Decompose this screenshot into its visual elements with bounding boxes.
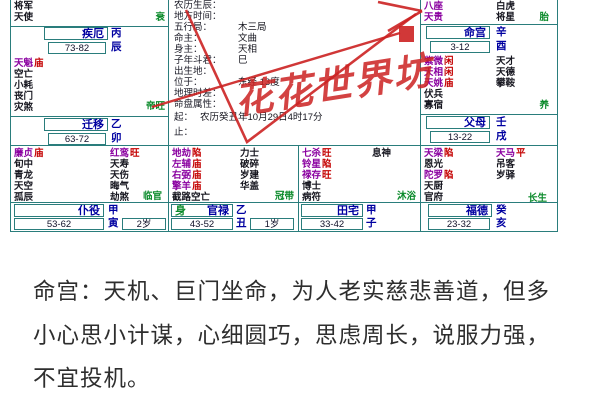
star-list: 力士 破碎 岁建 华盖	[240, 148, 259, 192]
stem: 辛	[496, 26, 508, 39]
grid-line	[10, 231, 558, 232]
star: 天厨	[424, 181, 454, 192]
star: 博士	[302, 181, 332, 192]
star: 天梁陷	[424, 148, 454, 159]
star: 息神	[372, 148, 391, 159]
palace-fude: 天梁陷 恩光 陀罗陷 天厨 官府 天马平 吊客 岁驿 长生 福德 癸 23-32…	[420, 143, 557, 231]
star: 红鸾旺	[110, 148, 140, 159]
stem: 壬	[496, 116, 508, 129]
info-row: 农历生辰：	[174, 0, 418, 11]
decade-range: 33-42	[301, 218, 363, 230]
annual-age: 2岁	[122, 218, 166, 230]
star: 天马平	[496, 148, 526, 159]
body-palace-marker: 身	[175, 205, 186, 216]
star: 地劫陷	[172, 148, 210, 159]
info-row: 命盘属性：	[174, 99, 418, 110]
stage-marker: 养	[539, 101, 549, 111]
stem: 癸	[496, 204, 508, 217]
star-list: 天才 天德 攀鞍	[496, 56, 515, 89]
star-list: 白虎 将星	[496, 1, 515, 23]
star-list: 八座 天贵	[424, 1, 443, 23]
palace-name: 父母	[426, 116, 490, 129]
astrology-article: 将军 天使 衰 疾厄 丙 73-82 辰 八座 天贵 白虎 将星 胎 命宫 辛 …	[0, 0, 600, 400]
description-line: 小心思小计谋，心细圆巧，思虑周长，说服力强，	[33, 314, 578, 358]
star: 旬中	[14, 159, 44, 170]
annual-age: 1岁	[250, 218, 294, 230]
star: 空亡	[14, 69, 44, 80]
palace-puyi: 廉贞庙 旬中 青龙 天空 孤辰 红鸾旺 天寿 天伤 晦气 劫煞 临官 仆役 甲 …	[10, 145, 168, 231]
star: 小耗	[14, 80, 44, 91]
stage-marker: 沐浴	[397, 192, 416, 202]
star: 华盖	[240, 181, 259, 192]
stem: 甲	[366, 204, 378, 217]
palace-name: 疾厄	[44, 27, 108, 40]
palace-name: 命宫	[426, 26, 490, 39]
palace-minggong: 八座 天贵 白虎 将星 胎 命宫 辛 3-12 酉	[420, 0, 557, 52]
branch: 戌	[496, 130, 508, 143]
palace-tianzhai: 七杀旺 铃星陷 禄存旺 博士 病符 息神 沐浴 田宅 甲 33-42 子	[298, 145, 420, 231]
decade-range: 23-32	[428, 218, 490, 230]
palace-name: 迁移	[44, 118, 108, 131]
star-list: 地劫陷 左辅庙 右弼庙 擎羊庙 截路空亡	[172, 148, 210, 203]
star-list: 七杀旺 铃星陷 禄存旺 博士 病符	[302, 148, 332, 203]
palace-description: 命宫：天机、巨门坐命，为人老实慈悲善道，但多 小心思小计谋，心细圆巧，思虑周长，…	[33, 270, 578, 400]
branch: 寅	[108, 217, 120, 230]
branch: 亥	[496, 217, 508, 230]
info-row: 止：	[174, 127, 418, 138]
star: 破碎	[240, 159, 259, 170]
palace-jie: 将军 天使 衰 疾厄 丙 73-82 辰	[10, 0, 168, 54]
info-row: 出生地：	[174, 66, 418, 77]
stage-marker: 长生	[528, 194, 547, 204]
star-list: 紫微闲 天相闲 天姚庙 伏兵 寡宿	[424, 56, 454, 111]
decade-range: 53-62	[14, 218, 104, 230]
star: 力士	[240, 148, 259, 159]
star-list: 天马平 吊客 岁驿	[496, 148, 526, 181]
info-row: 起：农历癸丑年10月29日4时17分	[174, 112, 418, 123]
decade-range: 43-52	[171, 218, 233, 230]
star: 八座	[424, 1, 443, 12]
birth-info-panel: 农历生辰： 地方时间： 五行局：木三局 命主：文曲 身主：天相 子年斗君：巳 出…	[168, 0, 420, 145]
palace-qianyi: 天魁庙 空亡 小耗 丧门 灾煞 帝旺 迁移 乙 63-72 卯	[10, 54, 168, 145]
star: 寡宿	[424, 100, 454, 111]
stage-marker: 冠带	[275, 192, 294, 202]
star: 官府	[424, 192, 454, 203]
star: 天相闲	[424, 67, 454, 78]
star: 病符	[302, 192, 332, 203]
star: 将军	[14, 1, 33, 12]
star: 天魁庙	[14, 58, 44, 69]
palace-name: 身官禄	[171, 204, 233, 217]
branch: 丑	[236, 217, 248, 230]
info-row: 身主：天相	[174, 44, 418, 55]
star: 禄存旺	[302, 170, 332, 181]
star: 攀鞍	[496, 78, 515, 89]
grid-line	[557, 0, 558, 231]
star: 擎羊庙	[172, 181, 210, 192]
stem: 甲	[108, 204, 120, 217]
star: 天姚庙	[424, 78, 454, 89]
palace-name: 福德	[428, 204, 492, 217]
decade-range: 63-72	[48, 133, 106, 145]
branch: 卯	[111, 132, 123, 145]
stage-marker: 衰	[155, 13, 165, 23]
star: 七杀旺	[302, 148, 332, 159]
info-row: 地方时间：	[174, 11, 418, 22]
stage-marker: 帝旺	[146, 102, 165, 112]
star: 紫微闲	[424, 56, 454, 67]
description-line: 不宜投机。	[33, 357, 578, 400]
star: 截路空亡	[172, 192, 210, 203]
ziwei-chart: 将军 天使 衰 疾厄 丙 73-82 辰 八座 天贵 白虎 将星 胎 命宫 辛 …	[0, 0, 600, 255]
stage-marker: 临官	[143, 192, 162, 202]
star-list: 红鸾旺 天寿 天伤 晦气 劫煞	[110, 148, 140, 203]
star: 天德	[496, 67, 515, 78]
star-list: 廉贞庙 旬中 青龙 天空 孤辰	[14, 148, 44, 203]
star: 丧门	[14, 91, 44, 102]
star-list: 息神	[372, 148, 391, 159]
star: 岁建	[240, 170, 259, 181]
info-row: 子年斗君：巳	[174, 55, 418, 66]
star: 晦气	[110, 181, 140, 192]
star: 廉贞庙	[14, 148, 44, 159]
info-row: 位于：东经 13度	[174, 77, 418, 88]
palace-fumu: 紫微闲 天相闲 天姚庙 伏兵 寡宿 天才 天德 攀鞍 养 父母 壬 13-22 …	[420, 52, 557, 143]
star: 伏兵	[424, 89, 454, 100]
star: 左辅庙	[172, 159, 210, 170]
stem: 丙	[111, 27, 123, 40]
palace-name: 仆役	[14, 204, 104, 217]
decade-range: 13-22	[430, 131, 490, 143]
star: 青龙	[14, 170, 44, 181]
star: 天空	[14, 181, 44, 192]
star: 铃星陷	[302, 159, 332, 170]
star: 灾煞	[14, 102, 44, 113]
star: 天伤	[110, 170, 140, 181]
star: 恩光	[424, 159, 454, 170]
star-list: 将军 天使	[14, 1, 33, 23]
stem: 乙	[111, 118, 123, 131]
info-row: 五行局：木三局	[174, 22, 418, 33]
star-list: 天梁陷 恩光 陀罗陷 天厨 官府	[424, 148, 454, 203]
star: 陀罗陷	[424, 170, 454, 181]
star: 天寿	[110, 159, 140, 170]
stage-marker: 胎	[539, 13, 549, 23]
star: 白虎	[496, 1, 515, 12]
star: 右弼庙	[172, 170, 210, 181]
description-line: 命宫：天机、巨门坐命，为人老实慈悲善道，但多	[33, 270, 578, 314]
star: 劫煞	[110, 192, 140, 203]
branch: 子	[366, 217, 378, 230]
palace-guanlu: 地劫陷 左辅庙 右弼庙 擎羊庙 截路空亡 力士 破碎 岁建 华盖 冠带 身官禄 …	[168, 145, 298, 231]
star: 吊客	[496, 159, 526, 170]
stem: 乙	[236, 204, 248, 217]
star: 天才	[496, 56, 515, 67]
branch: 辰	[111, 41, 123, 54]
decade-range: 73-82	[48, 42, 106, 54]
palace-name: 田宅	[301, 204, 363, 217]
star: 岁驿	[496, 170, 526, 181]
star-list: 天魁庙 空亡 小耗 丧门 灾煞	[14, 58, 44, 113]
star: 天贵	[424, 12, 443, 23]
info-row: 命主：文曲	[174, 33, 418, 44]
star: 孤辰	[14, 192, 44, 203]
info-row: 地理时差：	[174, 88, 418, 99]
star: 将星	[496, 12, 515, 23]
star: 天使	[14, 12, 33, 23]
